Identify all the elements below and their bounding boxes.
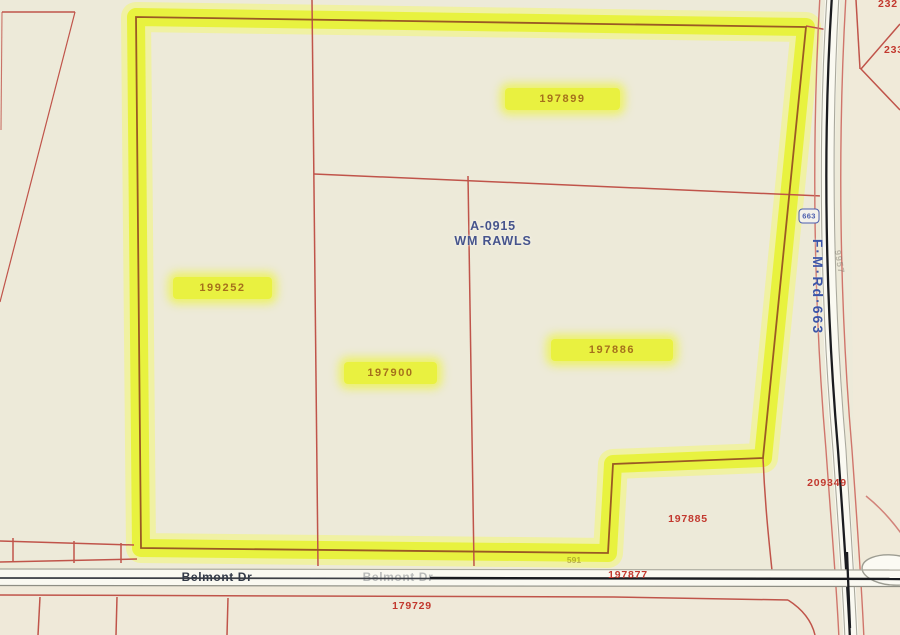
parcel-label-197899: 197899 bbox=[505, 88, 620, 110]
parcel-map: 197899 199252 197900 197886 A-0915 WM RA… bbox=[0, 0, 900, 635]
parcel-label-197885: 197885 bbox=[668, 514, 708, 525]
parcel-label-199252: 199252 bbox=[173, 277, 272, 299]
parcel-label-197886: 197886 bbox=[551, 339, 673, 361]
highway-shield-663: 663 bbox=[799, 209, 820, 224]
parcel-number: 199252 bbox=[199, 282, 245, 294]
parcel-label-179729: 179729 bbox=[392, 601, 432, 612]
shield-number: 663 bbox=[802, 212, 815, 221]
parcel-number: 197899 bbox=[539, 93, 585, 105]
abstract-owner-label: WM RAWLS bbox=[454, 235, 531, 248]
road-label-belmont-ghost: Belmont Dr bbox=[363, 571, 434, 583]
east-of-road-area bbox=[848, 0, 900, 635]
parcel-number: 197886 bbox=[589, 344, 635, 356]
fm-road-label: F·M·Rd·663 bbox=[811, 239, 825, 335]
parcel-number: 197900 bbox=[367, 367, 413, 379]
parcel-label-209349: 209349 bbox=[807, 478, 847, 489]
south-of-road-area bbox=[0, 586, 900, 635]
abstract-id-label: A-0915 bbox=[470, 220, 516, 233]
road-label-belmont: Belmont Dr bbox=[182, 571, 253, 583]
parcel-map-canvas bbox=[0, 0, 900, 635]
parcel-label-591: 591 bbox=[567, 556, 581, 565]
parcel-label-partial-233: 233 bbox=[884, 44, 900, 56]
parcel-label-197900: 197900 bbox=[344, 362, 437, 384]
parcel-label-partial-232: 232 bbox=[878, 0, 898, 10]
parcel-label-197877: 197877 bbox=[608, 570, 648, 581]
